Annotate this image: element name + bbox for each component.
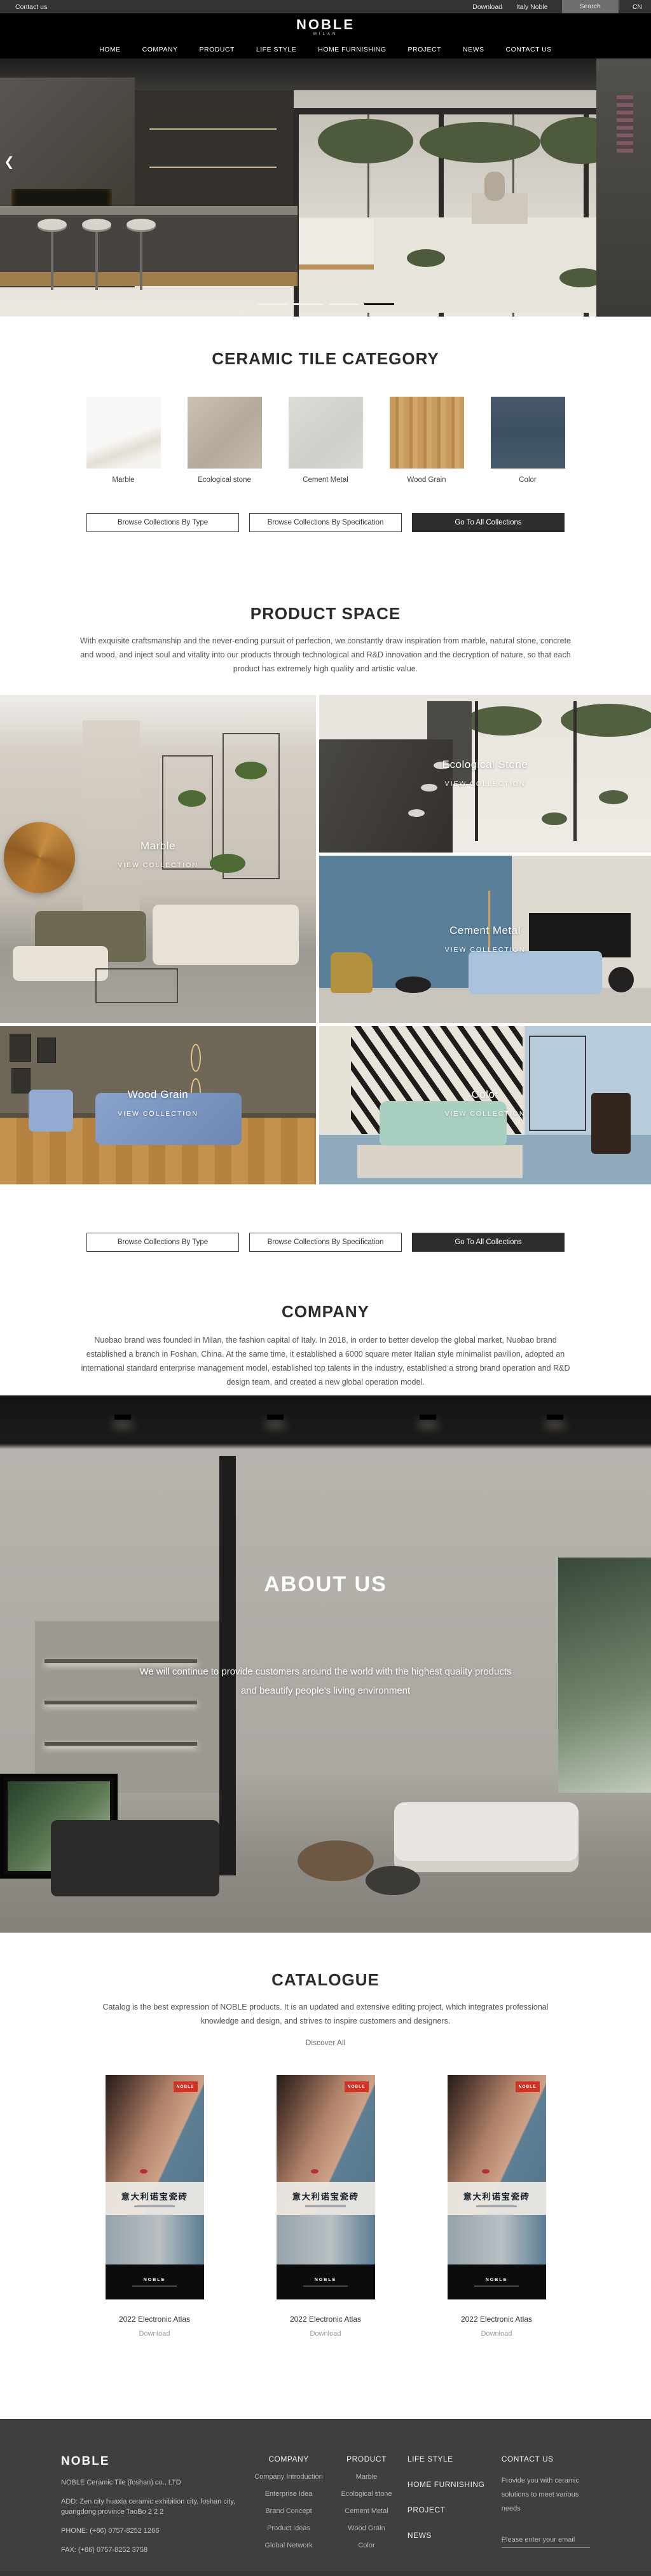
tile-label-group: Cement Metal VIEW COLLECTION	[319, 924, 651, 954]
space-tile-wood-grain[interactable]: Wood Grain VIEW COLLECTION	[0, 1026, 316, 1184]
cover-footer: NOBLE	[448, 2264, 546, 2299]
atlas-title: 2022 Electronic Atlas	[106, 2315, 204, 2324]
footer-logo: NOBLE	[61, 2455, 252, 2469]
decor	[10, 1034, 31, 1062]
swatch-marble-tile[interactable]	[86, 397, 161, 469]
footer-link-ecological-stone[interactable]: Ecological stone	[337, 2490, 396, 2498]
cover-title: 意大利诺宝瓷砖	[292, 2189, 359, 2202]
footer-fax: FAX: (+86) 0757-8252 3758	[61, 2545, 252, 2555]
tile-name: Color	[319, 1088, 651, 1101]
footer-column-contact: CONTACT US Provide you with ceramic solu…	[502, 2455, 590, 2556]
decor	[127, 219, 156, 230]
decor	[299, 219, 374, 270]
cover-footer-logo: NOBLE	[144, 2278, 166, 2282]
italy-noble-link[interactable]: Italy Noble	[516, 3, 548, 11]
swatch-ecological-stone: Ecological stone	[188, 397, 262, 484]
product-space-buttons: Browse Collections By Type Browse Collec…	[0, 1233, 651, 1252]
decor	[0, 206, 298, 215]
noble-logo-subtitle: MILAN	[313, 32, 338, 36]
swatch-wood-grain-tile[interactable]	[390, 397, 464, 469]
product-space-description: With exquisite craftsmanship and the nev…	[74, 634, 577, 676]
nav-item-company[interactable]: COMPANY	[142, 46, 178, 53]
decor	[82, 219, 111, 230]
decor	[407, 249, 445, 267]
decor	[617, 95, 633, 154]
download-link[interactable]: Download	[106, 2330, 204, 2338]
footer-link-project[interactable]: PROJECT	[408, 2505, 486, 2514]
decor	[191, 1044, 201, 1072]
footer-company-info: NOBLE NOBLE Ceramic Tile (foshan) co., L…	[61, 2455, 252, 2556]
cover-title: 意大利诺宝瓷砖	[463, 2189, 530, 2202]
category-title: CERAMIC TILE CATEGORY	[0, 348, 651, 369]
decor	[83, 720, 140, 936]
decor	[484, 172, 505, 201]
atlas-title: 2022 Electronic Atlas	[448, 2315, 546, 2324]
view-collection-link[interactable]: VIEW COLLECTION	[0, 861, 316, 869]
decor	[318, 119, 413, 163]
swatch-label: Ecological stone	[188, 476, 262, 484]
decor	[394, 1802, 579, 1872]
cover-title: 意大利诺宝瓷砖	[121, 2189, 188, 2202]
tile-name: Ecological Stone	[319, 758, 651, 771]
space-tile-color[interactable]: Color VIEW COLLECTION	[319, 1026, 651, 1184]
decor	[0, 272, 298, 286]
atlas-title: 2022 Electronic Atlas	[277, 2315, 375, 2324]
decor	[469, 951, 602, 994]
browse-by-specification-button[interactable]: Browse Collections By Specification	[249, 1233, 402, 1252]
decor	[38, 219, 67, 230]
swatch-color: Color	[491, 397, 565, 484]
decor	[305, 2205, 346, 2207]
site-header: NOBLE MILAN	[0, 13, 651, 41]
decor	[311, 2169, 319, 2174]
carousel-dash[interactable]	[257, 303, 287, 305]
newsletter-email-input[interactable]	[502, 2532, 590, 2548]
decor	[153, 905, 299, 965]
catalogue-caption-1: 2022 Electronic Atlas Download	[106, 2315, 204, 2338]
catalogue-covers: NOBLE 意大利诺宝瓷砖 NOBLE NOBLE 意大利诺宝瓷砖 NOBLE	[0, 2075, 651, 2299]
swatch-cement-metal: Cement Metal	[289, 397, 363, 484]
footer-link-home-furnishing[interactable]: HOME FURNISHING	[408, 2480, 486, 2489]
cover-logo-badge: NOBLE	[174, 2081, 198, 2092]
decor	[51, 1820, 219, 1896]
browse-by-type-button[interactable]: Browse Collections By Type	[86, 1233, 239, 1252]
carousel-dash-active[interactable]	[364, 303, 394, 305]
cover-footer: NOBLE	[106, 2264, 204, 2299]
decor	[366, 1866, 420, 1895]
decor	[95, 968, 178, 1003]
topbar-right-group: Download Italy Noble Search CN	[472, 0, 642, 13]
nav-item-contact-us[interactable]: CONTACT US	[506, 46, 552, 53]
footer-column-nav: LIFE STYLE HOME FURNISHING PROJECT NEWS	[408, 2455, 486, 2556]
company-description: Nuobao brand was founded in Milan, the f…	[81, 1333, 570, 1389]
cover-logo-badge: NOBLE	[345, 2081, 369, 2092]
footer-link-company-introduction[interactable]: Company Introduction	[252, 2473, 325, 2481]
view-collection-link[interactable]: VIEW COLLECTION	[319, 946, 651, 954]
footer-link-marble[interactable]: Marble	[337, 2473, 396, 2481]
footer-contact-title: CONTACT US	[502, 2455, 590, 2463]
footer-link-brand-concept[interactable]: Brand Concept	[252, 2507, 325, 2515]
cover-title-band: 意大利诺宝瓷砖	[448, 2182, 546, 2215]
decor	[277, 2215, 375, 2264]
nav-item-home[interactable]: HOME	[99, 46, 121, 53]
decor	[51, 229, 53, 290]
footer-link-life-style[interactable]: LIFE STYLE	[408, 2455, 486, 2463]
footer-link-news[interactable]: NEWS	[408, 2531, 486, 2540]
space-tile-marble[interactable]: Marble VIEW COLLECTION	[0, 695, 316, 1023]
cover-footer: NOBLE	[277, 2264, 375, 2299]
decor	[140, 2169, 147, 2174]
decor	[149, 128, 277, 130]
contact-us-link[interactable]: Contact us	[15, 3, 47, 11]
swatch-label: Marble	[86, 476, 161, 484]
catalogue-description: Catalog is the best expression of NOBLE …	[97, 2000, 554, 2028]
decor	[474, 2285, 519, 2287]
swatch-cement-metal-tile[interactable]	[289, 397, 363, 469]
carousel-dash[interactable]	[329, 303, 359, 305]
cover-footer-logo: NOBLE	[315, 2278, 337, 2282]
footer-column-product: PRODUCT Marble Ecological stone Cement M…	[337, 2455, 396, 2556]
footer-column-title: COMPANY	[252, 2455, 325, 2463]
swatch-wood-grain: Wood Grain	[390, 397, 464, 484]
decor	[542, 812, 567, 825]
footer-link-color[interactable]: Color	[337, 2542, 396, 2549]
top-utility-bar: Contact us Download Italy Noble Search C…	[0, 0, 651, 13]
swatch-label: Color	[491, 476, 565, 484]
decor	[134, 2205, 175, 2207]
company-section: COMPANY Nuobao brand was founded in Mila…	[0, 1252, 651, 1389]
decor	[45, 1701, 197, 1704]
tile-label-group: Marble VIEW COLLECTION	[0, 840, 316, 869]
footer-phone: PHONE: (+86) 0757-8252 1266	[61, 2526, 252, 2536]
site-footer: NOBLE NOBLE Ceramic Tile (foshan) co., L…	[0, 2419, 651, 2576]
swatch-label: Cement Metal	[289, 476, 363, 484]
decor	[476, 2205, 517, 2207]
decor	[395, 976, 431, 993]
decor	[106, 2215, 204, 2264]
catalogue-caption-2: 2022 Electronic Atlas Download	[277, 2315, 375, 2338]
footer-link-global-network[interactable]: Global Network	[252, 2542, 325, 2549]
view-collection-link[interactable]: VIEW COLLECTION	[319, 780, 651, 788]
about-line-2: and beautify people's living environment	[0, 1682, 651, 1701]
decor	[599, 790, 628, 804]
decor	[420, 1415, 436, 1420]
product-space-grid: Marble VIEW COLLECTION Ecological Stone …	[0, 695, 651, 1184]
footer-contact-text: Provide you with ceramic solutions to me…	[502, 2474, 590, 2516]
decor	[448, 2215, 546, 2264]
footer-link-product-ideas[interactable]: Product Ideas	[252, 2525, 325, 2532]
tile-label-group: Wood Grain VIEW COLLECTION	[0, 1088, 316, 1118]
go-to-all-collections-button[interactable]: Go To All Collections	[412, 513, 565, 532]
decor	[547, 1415, 563, 1420]
nav-item-home-furnishing[interactable]: HOME FURNISHING	[318, 46, 386, 53]
discover-all-link[interactable]: Discover All	[0, 2038, 651, 2047]
tile-label-group: Ecological Stone VIEW COLLECTION	[319, 758, 651, 788]
space-tile-cement-metal[interactable]: Cement Metal VIEW COLLECTION	[319, 856, 651, 1023]
tile-label-group: Color VIEW COLLECTION	[319, 1088, 651, 1118]
decor	[132, 2285, 177, 2287]
catalogue-cover-1[interactable]: NOBLE 意大利诺宝瓷砖 NOBLE	[106, 2075, 204, 2299]
product-space-title: PRODUCT SPACE	[0, 603, 651, 624]
swatch-label: Wood Grain	[390, 476, 464, 484]
footer-bottom-strip	[0, 2571, 651, 2576]
decor	[303, 2285, 348, 2287]
decor	[95, 229, 98, 290]
swatch-row: Marble Ecological stone Cement Metal Woo…	[0, 397, 651, 484]
decor	[482, 2169, 490, 2174]
language-switch[interactable]: CN	[633, 3, 642, 11]
about-us-title: ABOUT US	[0, 1572, 651, 1597]
carousel-dash[interactable]	[293, 303, 323, 305]
go-to-all-collections-button[interactable]: Go To All Collections	[412, 1233, 565, 1252]
download-link[interactable]: Download	[448, 2330, 546, 2338]
footer-link-cement-metal[interactable]: Cement Metal	[337, 2507, 396, 2515]
category-buttons: Browse Collections By Type Browse Collec…	[0, 513, 651, 532]
about-us-text: We will continue to provide customers ar…	[0, 1662, 651, 1701]
about-us-banner[interactable]: ABOUT US We will continue to provide cus…	[0, 1395, 651, 1933]
cover-footer-logo: NOBLE	[486, 2278, 508, 2282]
catalogue-section: CATALOGUE Catalog is the best expression…	[0, 1933, 651, 2338]
decor	[35, 1621, 219, 1793]
catalogue-caption-3: 2022 Electronic Atlas Download	[448, 2315, 546, 2338]
carousel-pagination[interactable]	[0, 303, 651, 305]
catalogue-cover-2[interactable]: NOBLE 意大利诺宝瓷砖 NOBLE	[277, 2075, 375, 2299]
decor	[13, 946, 108, 981]
nav-item-project[interactable]: PROJECT	[408, 46, 442, 53]
download-link[interactable]: Download	[472, 3, 502, 11]
decor	[420, 122, 540, 163]
footer-address: ADD: Zen city huaxia ceramic exhibition …	[61, 2497, 252, 2517]
cover-logo-badge: NOBLE	[516, 2081, 540, 2092]
catalogue-captions: 2022 Electronic Atlas Download 2022 Elec…	[0, 2315, 651, 2338]
footer-column-title: PRODUCT	[337, 2455, 396, 2463]
nav-item-life-style[interactable]: LIFE STYLE	[256, 46, 296, 53]
swatch-marble: Marble	[86, 397, 161, 484]
search-button[interactable]: Search	[562, 0, 619, 13]
decor	[298, 1840, 374, 1881]
footer-link-enterprise-idea[interactable]: Enterprise Idea	[252, 2490, 325, 2498]
tile-name: Marble	[0, 840, 316, 853]
decor	[408, 809, 425, 817]
noble-logo[interactable]: NOBLE	[296, 18, 355, 32]
decor	[37, 1038, 56, 1063]
swatch-ecological-stone-tile[interactable]	[188, 397, 262, 469]
decor	[357, 1145, 523, 1178]
space-tile-ecological-stone[interactable]: Ecological Stone VIEW COLLECTION	[319, 695, 651, 853]
footer-link-wood-grain[interactable]: Wood Grain	[337, 2525, 396, 2532]
product-space-section: PRODUCT SPACE With exquisite craftsmansh…	[0, 532, 651, 1252]
hero-carousel: ❮	[0, 58, 651, 317]
nav-item-news[interactable]: NEWS	[463, 46, 484, 53]
decor	[149, 167, 277, 168]
catalogue-title: CATALOGUE	[0, 1970, 651, 1990]
view-collection-link[interactable]: VIEW COLLECTION	[319, 1110, 651, 1118]
download-link[interactable]: Download	[277, 2330, 375, 2338]
tile-name: Wood Grain	[0, 1088, 316, 1101]
about-line-1: We will continue to provide customers ar…	[0, 1662, 651, 1682]
decor	[608, 967, 634, 992]
nav-item-product[interactable]: PRODUCT	[199, 46, 234, 53]
decor	[235, 762, 267, 779]
decor	[178, 790, 206, 807]
cover-title-band: 意大利诺宝瓷砖	[106, 2182, 204, 2215]
decor	[267, 1415, 284, 1420]
decor	[45, 1742, 197, 1746]
tile-name: Cement Metal	[319, 924, 651, 937]
decor	[114, 1415, 131, 1420]
ceramic-tile-category-section: CERAMIC TILE CATEGORY Marble Ecological …	[0, 317, 651, 532]
view-collection-link[interactable]: VIEW COLLECTION	[0, 1110, 316, 1118]
cover-title-band: 意大利诺宝瓷砖	[277, 2182, 375, 2215]
main-nav: HOME COMPANY PRODUCT LIFE STYLE HOME FUR…	[0, 41, 651, 58]
swatch-color-tile[interactable]	[491, 397, 565, 469]
decor	[140, 229, 142, 290]
footer-company-name: NOBLE Ceramic Tile (foshan) co., LTD	[61, 2477, 252, 2488]
catalogue-cover-3[interactable]: NOBLE 意大利诺宝瓷砖 NOBLE	[448, 2075, 546, 2299]
company-title: COMPANY	[0, 1301, 651, 1322]
browse-by-type-button[interactable]: Browse Collections By Type	[86, 513, 239, 532]
chevron-left-icon[interactable]: ❮	[4, 154, 15, 170]
decor	[319, 739, 453, 853]
browse-by-specification-button[interactable]: Browse Collections By Specification	[249, 513, 402, 532]
footer-column-company: COMPANY Company Introduction Enterprise …	[252, 2455, 325, 2556]
decor	[331, 952, 373, 993]
